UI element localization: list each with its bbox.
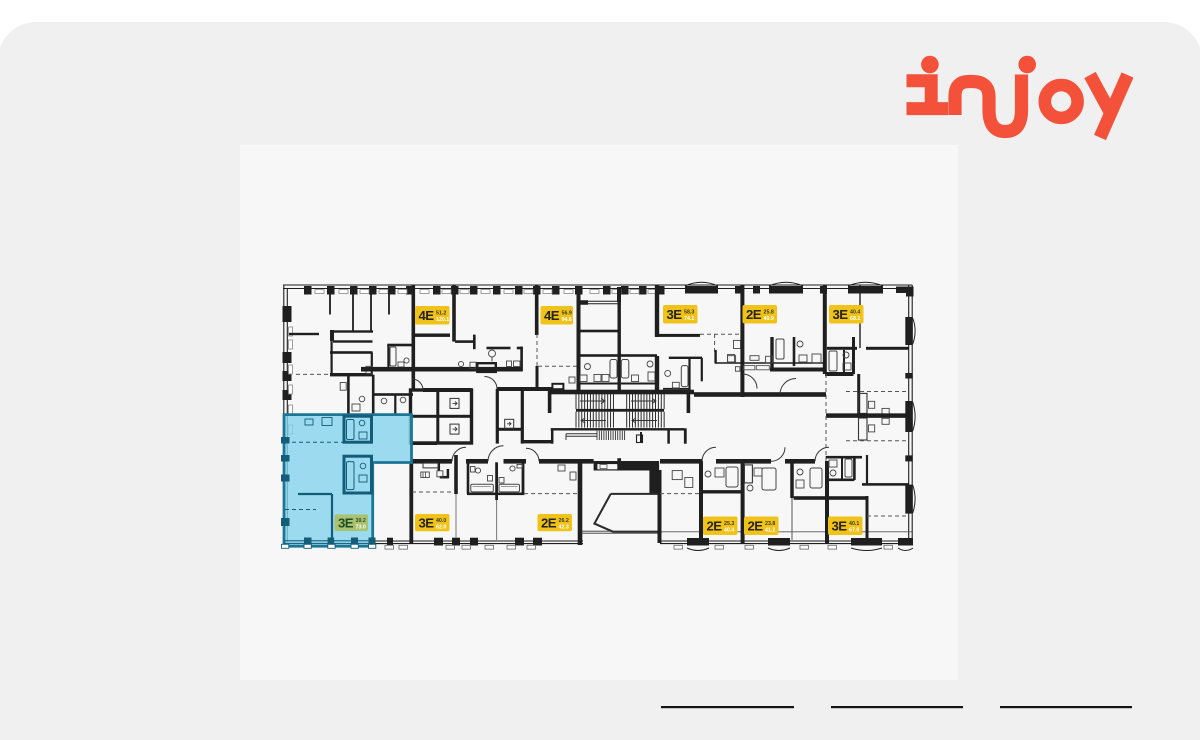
svg-text:40.9: 40.9 — [764, 316, 774, 322]
svg-text:26.2: 26.2 — [559, 518, 569, 524]
svg-text:40.4: 40.4 — [850, 310, 860, 316]
svg-text:3E: 3E — [833, 307, 849, 322]
svg-text:2E: 2E — [746, 307, 762, 322]
svg-text:62.0: 62.0 — [436, 524, 446, 530]
svg-text:3E: 3E — [419, 515, 435, 530]
svg-text:94.6: 94.6 — [562, 317, 572, 323]
svg-text:51.2: 51.2 — [436, 311, 446, 317]
svg-text:58.3: 58.3 — [684, 310, 694, 316]
svg-text:40.1: 40.1 — [849, 521, 859, 527]
svg-text:25.8: 25.8 — [764, 310, 774, 316]
svg-text:56.9: 56.9 — [562, 311, 572, 317]
svg-text:74.1: 74.1 — [684, 316, 694, 322]
svg-text:39.2: 39.2 — [356, 518, 366, 524]
svg-text:67.8: 67.8 — [849, 528, 859, 534]
svg-text:3E: 3E — [832, 519, 848, 534]
svg-text:3E: 3E — [338, 516, 354, 531]
svg-text:23.8: 23.8 — [765, 521, 775, 527]
svg-text:40.0: 40.0 — [436, 518, 446, 524]
svg-text:4E: 4E — [419, 308, 435, 323]
svg-text:40.4: 40.4 — [724, 528, 734, 534]
svg-text:25.3: 25.3 — [724, 521, 734, 527]
svg-text:2E: 2E — [707, 519, 723, 534]
svg-text:73.0: 73.0 — [356, 525, 366, 531]
svg-text:68.1: 68.1 — [850, 316, 860, 322]
svg-text:41.2: 41.2 — [765, 528, 775, 534]
svg-text:4E: 4E — [544, 308, 560, 323]
svg-text:42.3: 42.3 — [559, 524, 569, 530]
svg-text:120.1: 120.1 — [436, 317, 449, 323]
svg-text:3E: 3E — [667, 307, 683, 322]
svg-text:2E: 2E — [541, 515, 557, 530]
svg-text:2E: 2E — [748, 519, 764, 534]
